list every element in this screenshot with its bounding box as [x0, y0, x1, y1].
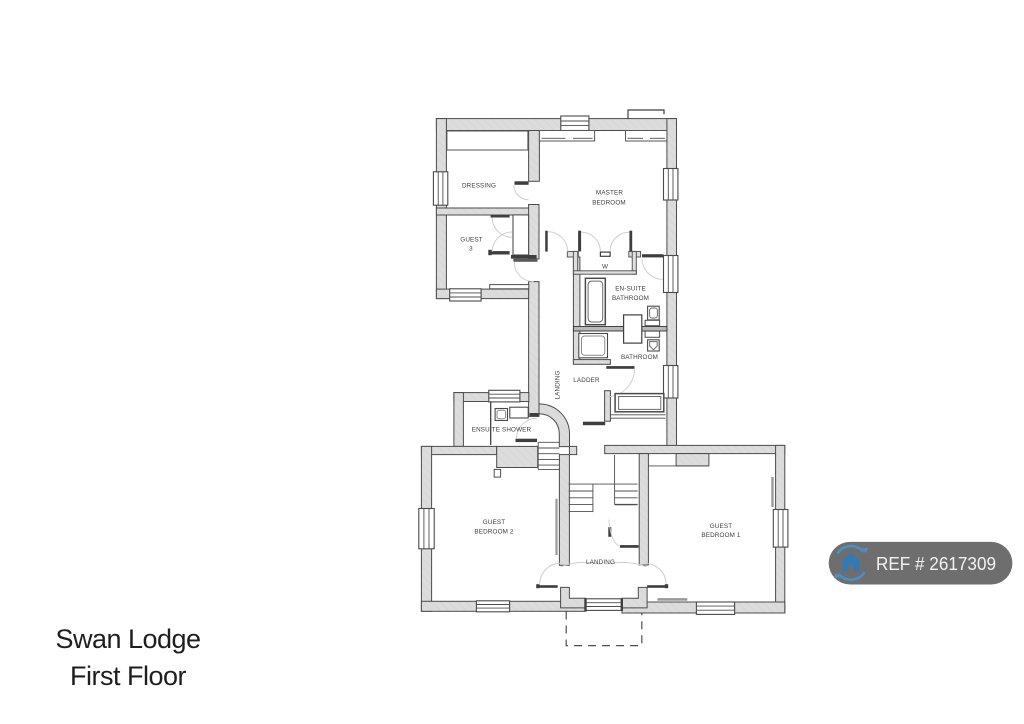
svg-text:EN-SUITE: EN-SUITE — [615, 286, 646, 293]
svg-text:DRESSING: DRESSING — [462, 183, 496, 190]
svg-text:LANDING: LANDING — [586, 559, 615, 566]
svg-text:BEDROOM 1: BEDROOM 1 — [701, 532, 740, 539]
svg-text:W: W — [602, 264, 608, 271]
svg-text:ENSUITE SHOWER: ENSUITE SHOWER — [472, 427, 532, 434]
svg-text:GUEST: GUEST — [710, 523, 732, 530]
svg-text:Swan Lodge: Swan Lodge — [55, 624, 200, 654]
svg-text:BATHROOM: BATHROOM — [612, 295, 649, 302]
svg-text:REF # 2617309: REF # 2617309 — [876, 553, 996, 574]
svg-text:GUEST: GUEST — [460, 237, 482, 244]
svg-text:3: 3 — [469, 246, 473, 253]
svg-text:LANDING: LANDING — [555, 370, 562, 399]
svg-text:MASTER: MASTER — [596, 190, 623, 197]
svg-text:GUEST: GUEST — [483, 519, 505, 526]
svg-text:First Floor: First Floor — [70, 661, 187, 691]
svg-text:BATHROOM: BATHROOM — [621, 354, 658, 361]
svg-text:LADDER: LADDER — [573, 377, 600, 384]
svg-text:BEDROOM: BEDROOM — [592, 200, 626, 207]
svg-text:BEDROOM 2: BEDROOM 2 — [474, 529, 513, 536]
